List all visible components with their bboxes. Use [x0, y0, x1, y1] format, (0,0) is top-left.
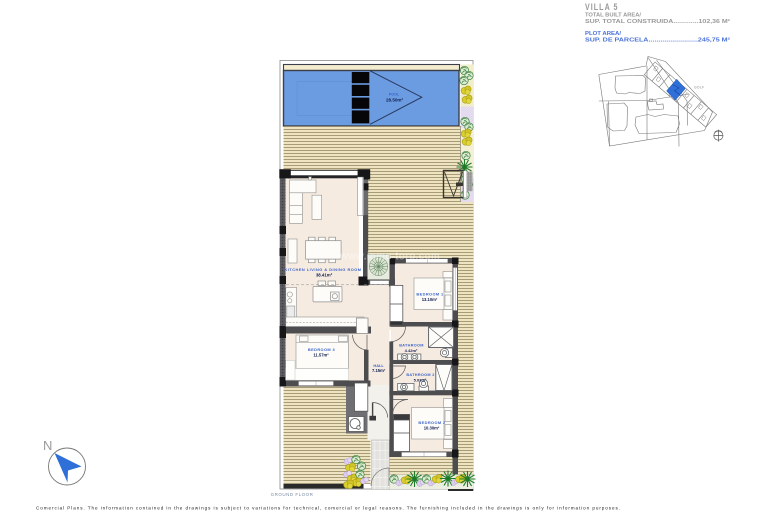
svg-text:SUP. DE PARCELA...............: SUP. DE PARCELA.........................…: [585, 37, 730, 43]
svg-text:SUP. TOTAL CONSTRUIDA.........: SUP. TOTAL CONSTRUIDA.............102,36…: [585, 19, 730, 25]
svg-text:TOTAL BUILT AREA/: TOTAL BUILT AREA/: [585, 13, 642, 19]
svg-text:VILLA 5: VILLA 5: [585, 2, 619, 12]
svg-text:BEDROOM 2: BEDROOM 2: [418, 420, 446, 425]
svg-text:Comercial Plans. The informati: Comercial Plans. The information contain…: [36, 506, 620, 511]
svg-text:BEDROOM 3: BEDROOM 3: [308, 347, 336, 352]
svg-text:POOL: POOL: [389, 92, 400, 96]
svg-text:BATHROOM 2: BATHROOM 2: [406, 373, 434, 377]
svg-text:11.57m²: 11.57m²: [313, 353, 329, 358]
svg-text:GROUND FLOOR: GROUND FLOOR: [271, 492, 314, 497]
svg-text:10.30m²: 10.30m²: [424, 426, 440, 431]
svg-text:BEDROOM 1: BEDROOM 1: [416, 291, 444, 296]
svg-text:BATHROOM: BATHROOM: [399, 344, 423, 348]
svg-text:28.50m²: 28.50m²: [386, 97, 404, 102]
svg-text:www.inmo-toro.com: www.inmo-toro.com: [339, 251, 440, 263]
svg-text:KITCHEN LIVING & DINING ROOM: KITCHEN LIVING & DINING ROOM: [284, 267, 361, 272]
svg-text:13.10m²: 13.10m²: [422, 297, 438, 302]
svg-text:7.15m²: 7.15m²: [372, 368, 386, 373]
svg-text:4.42m²: 4.42m²: [405, 348, 418, 353]
svg-text:GOLF: GOLF: [694, 86, 704, 90]
svg-text:PLOT AREA/: PLOT AREA/: [585, 31, 622, 37]
svg-text:N: N: [43, 438, 52, 453]
svg-text:5.03m²: 5.03m²: [414, 377, 427, 382]
svg-text:38.41m²: 38.41m²: [316, 272, 333, 277]
